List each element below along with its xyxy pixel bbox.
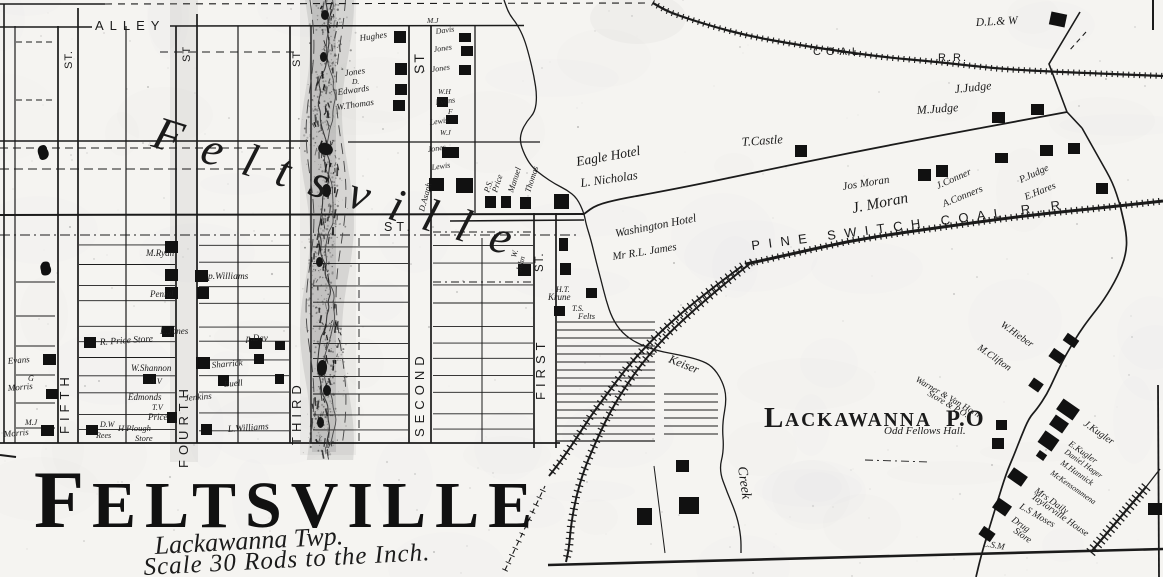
svg-text:F: F [34,454,84,545]
svg-text:Krune: Krune [547,292,571,302]
svg-text:ST.: ST. [63,50,75,69]
svg-text:ST.: ST. [534,252,546,272]
svg-text:W.Shannon: W.Shannon [131,363,172,373]
svg-text:W.H: W.H [438,87,451,96]
svg-text:E.Jones: E.Jones [159,326,189,336]
svg-text:H Plough: H Plough [117,423,151,433]
svg-text:p.Williams: p.Williams [207,272,249,282]
svg-text:ST: ST [411,52,427,74]
svg-text:Penial: Penial [149,289,174,299]
svg-text:R.R.: R.R. [938,52,968,64]
svg-text:T.V: T.V [152,403,164,412]
svg-text:FIFTH: FIFTH [57,372,72,434]
svg-text:W.J: W.J [440,128,451,137]
svg-text:D.L.& W: D.L.& W [975,15,1020,29]
svg-text:Rees: Rees [95,431,111,440]
svg-text:SECOND: SECOND [412,351,427,437]
svg-text:ST: ST [181,46,193,62]
svg-text:T.Castle: T.Castle [741,132,783,149]
svg-text:Store: Store [135,433,153,443]
svg-text:ST: ST [291,51,303,67]
svg-text:D.W: D.W [99,420,116,429]
svg-text:ST.: ST. [384,220,414,234]
svg-text:p.Dav: p.Dav [245,333,268,343]
svg-text:Price: Price [147,412,168,422]
svg-text:FIRST: FIRST [533,337,548,400]
svg-text:Odd Fellows Hall.: Odd Fellows Hall. [884,425,966,437]
svg-text:COAL: COAL [813,46,863,58]
svg-text:THIRD: THIRD [289,380,304,445]
svg-text:Evans: Evans [6,354,30,366]
svg-text:Buell: Buell [223,377,243,389]
svg-text:F: F [447,107,453,116]
svg-text:M.J: M.J [24,418,38,427]
svg-text:Edmonds: Edmonds [127,392,162,402]
svg-text:M.Ryan: M.Ryan [145,248,175,258]
svg-text:Felts: Felts [577,311,596,321]
svg-text:ALLEY: ALLEY [95,18,165,33]
svg-text:A.V: A.V [149,377,163,386]
svg-text:M.J: M.J [426,16,439,25]
svg-text:L: L [764,402,785,434]
